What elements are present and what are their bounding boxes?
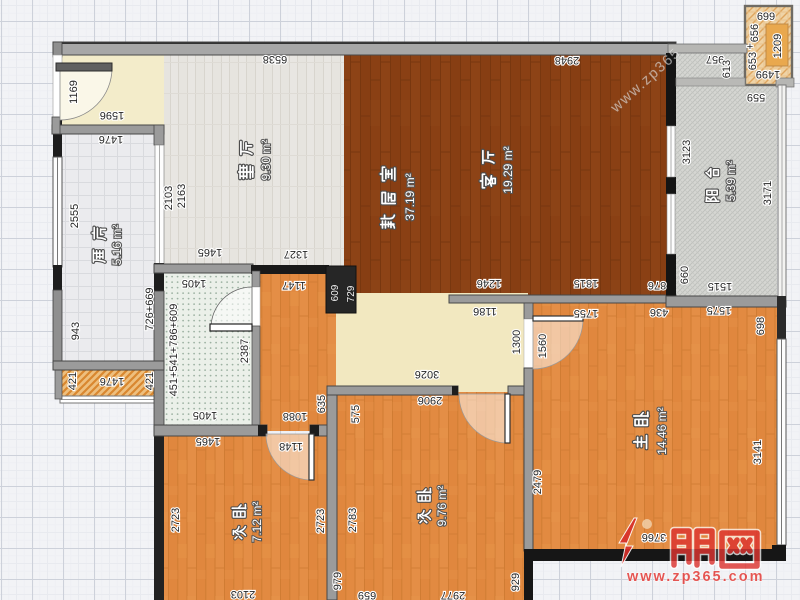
svg-text:1476: 1476 bbox=[100, 375, 124, 387]
svg-text:2479: 2479 bbox=[532, 470, 544, 494]
svg-text:2723: 2723 bbox=[170, 508, 182, 532]
svg-text:1088: 1088 bbox=[283, 410, 307, 422]
svg-text:635: 635 bbox=[316, 395, 328, 413]
svg-text:421: 421 bbox=[67, 372, 79, 390]
svg-text:3171: 3171 bbox=[762, 181, 774, 205]
svg-text:9.76 m²: 9.76 m² bbox=[435, 486, 449, 527]
svg-text:2103: 2103 bbox=[163, 186, 175, 210]
svg-text:1405: 1405 bbox=[193, 409, 217, 421]
svg-text:2906: 2906 bbox=[418, 394, 442, 406]
svg-text:1465: 1465 bbox=[196, 435, 220, 447]
svg-text:1405: 1405 bbox=[182, 277, 206, 289]
svg-text:www.zp365.com: www.zp365.com bbox=[626, 569, 764, 585]
svg-text:2103: 2103 bbox=[231, 588, 255, 600]
svg-text:653: 653 bbox=[747, 52, 759, 70]
svg-text:2977: 2977 bbox=[441, 589, 465, 600]
svg-text:37.19 m²: 37.19 m² bbox=[403, 173, 417, 220]
svg-text:1575: 1575 bbox=[707, 304, 731, 316]
svg-text:726+669: 726+669 bbox=[144, 287, 156, 330]
svg-text:+: + bbox=[747, 41, 753, 53]
svg-text:979: 979 bbox=[332, 572, 344, 590]
svg-text:9.30 m²: 9.30 m² bbox=[259, 140, 273, 181]
svg-text:2555: 2555 bbox=[69, 204, 81, 228]
svg-text:2387: 2387 bbox=[239, 339, 251, 363]
svg-text:1596: 1596 bbox=[100, 109, 124, 121]
svg-text:1186: 1186 bbox=[473, 305, 497, 317]
svg-text:699: 699 bbox=[757, 11, 775, 23]
svg-text:659: 659 bbox=[358, 589, 376, 600]
svg-text:3141: 3141 bbox=[752, 440, 764, 464]
svg-text:6538: 6538 bbox=[263, 53, 287, 65]
svg-text:1148: 1148 bbox=[279, 440, 303, 452]
svg-text:1755: 1755 bbox=[574, 307, 598, 319]
svg-text:3766: 3766 bbox=[642, 531, 666, 543]
svg-text:19.29 m²: 19.29 m² bbox=[501, 146, 515, 193]
svg-text:436: 436 bbox=[650, 306, 668, 318]
svg-text:1515: 1515 bbox=[708, 280, 732, 292]
svg-text:729: 729 bbox=[346, 285, 357, 302]
svg-text:876: 876 bbox=[648, 279, 666, 291]
svg-text:451+541+786+609: 451+541+786+609 bbox=[168, 304, 180, 397]
svg-text:7.12 m²: 7.12 m² bbox=[250, 502, 264, 543]
svg-text:2948: 2948 bbox=[555, 54, 579, 66]
svg-text:609: 609 bbox=[330, 284, 341, 301]
svg-text:660: 660 bbox=[679, 266, 691, 284]
svg-text:5.16 m²: 5.16 m² bbox=[110, 225, 124, 266]
svg-text:3026: 3026 bbox=[415, 368, 439, 380]
svg-text:1169: 1169 bbox=[68, 80, 80, 104]
svg-text:3123: 3123 bbox=[681, 140, 693, 164]
svg-text:1560: 1560 bbox=[537, 334, 549, 358]
svg-text:613: 613 bbox=[721, 60, 733, 78]
svg-text:2163: 2163 bbox=[176, 184, 188, 208]
svg-text:929: 929 bbox=[510, 573, 522, 591]
svg-text:1476: 1476 bbox=[99, 133, 123, 145]
svg-text:1300: 1300 bbox=[511, 330, 523, 354]
svg-text:698: 698 bbox=[755, 317, 767, 335]
svg-text:5.39 m²: 5.39 m² bbox=[724, 161, 738, 202]
svg-text:575: 575 bbox=[350, 405, 362, 423]
svg-text:421: 421 bbox=[144, 372, 156, 390]
svg-text:559: 559 bbox=[747, 91, 765, 103]
svg-text:1147: 1147 bbox=[282, 279, 306, 291]
svg-text:1465: 1465 bbox=[198, 246, 222, 258]
svg-text:2783: 2783 bbox=[347, 508, 359, 532]
svg-text:14.46 m²: 14.46 m² bbox=[655, 407, 669, 454]
svg-text:943: 943 bbox=[70, 322, 82, 340]
svg-text:1246: 1246 bbox=[477, 277, 501, 289]
svg-text:656: 656 bbox=[749, 24, 761, 42]
svg-text:1815: 1815 bbox=[574, 277, 598, 289]
svg-text:1209: 1209 bbox=[772, 34, 784, 58]
svg-text:1327: 1327 bbox=[284, 248, 308, 260]
svg-text:2723: 2723 bbox=[315, 509, 327, 533]
svg-text:1499: 1499 bbox=[756, 68, 780, 80]
